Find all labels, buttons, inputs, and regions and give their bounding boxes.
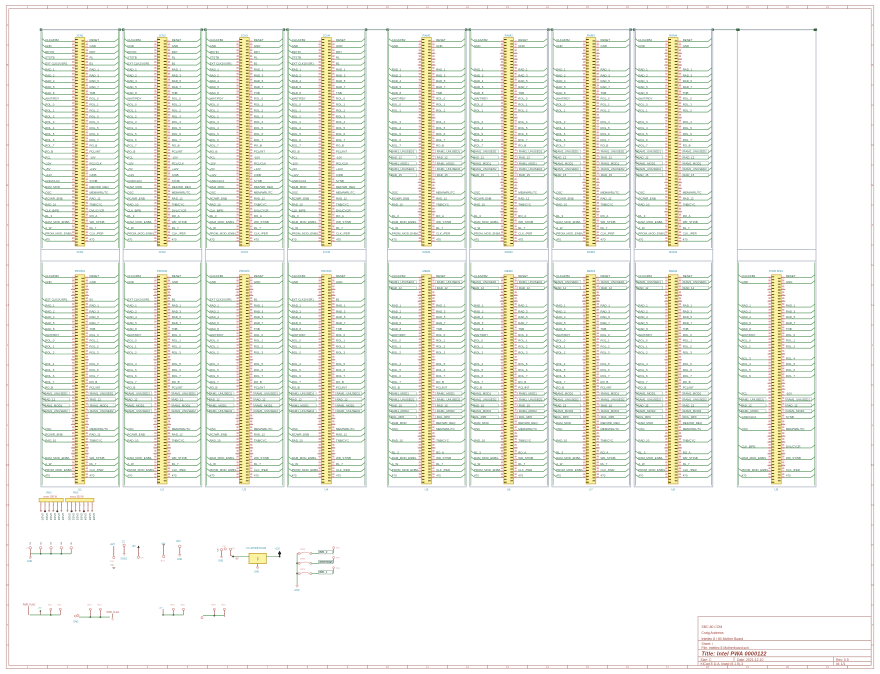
svg-text:R12: R12	[58, 605, 63, 607]
svg-text:GND0: GND0	[41, 513, 45, 521]
svg-text:G: G	[6, 263, 8, 267]
svg-text:GND3: GND3	[53, 513, 57, 521]
svg-text:JCN2: JCN2	[158, 250, 166, 254]
svg-text:Id: 1/1: Id: 1/1	[836, 662, 846, 666]
svg-text:PWR_FLAG: PWR_FLAG	[23, 604, 36, 607]
svg-text:S5: S5	[71, 541, 73, 544]
svg-text:GND2: GND2	[121, 559, 128, 561]
svg-text:JCN1: JCN1	[76, 33, 84, 37]
svg-text:JCN4: JCN4	[323, 33, 331, 37]
svg-text:JCN1: JCN1	[76, 250, 84, 254]
svg-text:R21: R21	[222, 605, 227, 607]
svg-text:INTR/TRAP: INTR/TRAP	[319, 561, 332, 564]
svg-text:JCN4: JCN4	[323, 250, 331, 254]
svg-text:RAM2: RAM2	[505, 250, 513, 254]
svg-text:U5: U5	[425, 488, 429, 492]
svg-text:GND: GND	[254, 572, 259, 574]
svg-text:C2: C2	[122, 541, 126, 543]
svg-text:RAM2: RAM2	[505, 33, 513, 37]
svg-text:U6: U6	[507, 488, 511, 492]
svg-text:S2: S2	[40, 541, 42, 544]
svg-text:C10: C10	[110, 561, 115, 563]
svg-text:PWR MSU: PWR MSU	[769, 269, 783, 273]
svg-text:T: T	[7, 623, 9, 627]
svg-text:-5V: -5V	[235, 559, 239, 561]
svg-text:TP1: TP1	[336, 548, 341, 550]
svg-text:R: R	[7, 583, 9, 587]
svg-text:P: P	[7, 543, 9, 547]
svg-text:JP85: JP85	[300, 559, 306, 561]
svg-text:R14: R14	[98, 605, 103, 607]
svg-text:GND0: GND0	[67, 513, 71, 521]
svg-text:H: H	[7, 303, 9, 307]
svg-text:File: Intellec 8 Motherboard.s: File: Intellec 8 Motherboard.sch	[702, 646, 749, 650]
svg-text:PWR_FLAG: PWR_FLAG	[107, 611, 120, 614]
svg-text:D1: D1	[232, 548, 236, 550]
svg-text:R20: R20	[181, 605, 186, 607]
svg-text:GND2: GND2	[49, 513, 53, 521]
svg-text:PROM4: PROM4	[321, 269, 332, 273]
svg-text:R13: R13	[88, 605, 93, 607]
svg-text:INTL_2: INTL_2	[319, 551, 328, 554]
svg-text:M: M	[871, 463, 873, 467]
svg-text:RAM4: RAM4	[669, 33, 677, 37]
svg-text:RN1: RN1	[46, 491, 52, 495]
svg-text:PROM1: PROM1	[75, 269, 86, 273]
svg-text:Title: Intel PWA 0000122: Title: Intel PWA 0000122	[702, 652, 767, 658]
svg-text:H: H	[872, 303, 874, 307]
svg-text:R19: R19	[212, 605, 217, 607]
svg-text:RAM1: RAM1	[422, 33, 430, 37]
svg-text:R11: R11	[48, 605, 53, 607]
svg-text:S3: S3	[51, 541, 53, 544]
svg-text:R: R	[872, 583, 874, 587]
svg-text:GND: GND	[27, 561, 32, 563]
svg-text:U1: U1	[78, 488, 82, 492]
svg-text:K: K	[872, 383, 874, 387]
svg-text:GND4: GND4	[84, 513, 88, 521]
svg-text:RAM1: RAM1	[422, 250, 430, 254]
svg-text:R16: R16	[177, 541, 182, 543]
svg-text:+5V: +5V	[159, 607, 163, 609]
svg-text:INTL_1: INTL_1	[319, 571, 328, 574]
svg-text:xxxxx 330 W: xxxxx 330 W	[70, 495, 84, 498]
svg-text:U7: U7	[589, 488, 593, 492]
svg-text:F: F	[872, 223, 874, 227]
svg-text:+12V: +12V	[275, 549, 281, 551]
svg-text:U3: U3	[242, 488, 246, 492]
svg-text:JP83: JP83	[300, 569, 306, 571]
svg-text:GND: GND	[73, 622, 78, 624]
svg-text:C8: C8	[217, 548, 219, 552]
svg-text:+12V: +12V	[110, 544, 116, 546]
svg-text:JCN3: JCN3	[241, 250, 249, 254]
svg-text:SBC-80.COM: SBC-80.COM	[702, 625, 723, 629]
svg-text:GND6: GND6	[92, 513, 96, 521]
svg-text:GND: GND	[177, 559, 182, 561]
svg-text:JCN2: JCN2	[158, 33, 166, 37]
svg-text:C: C	[872, 103, 874, 107]
svg-text:PROM2: PROM2	[157, 269, 168, 273]
svg-text:B: B	[7, 63, 9, 67]
svg-text:P: P	[872, 543, 874, 547]
svg-text:M: M	[6, 463, 8, 467]
svg-text:RAM4: RAM4	[669, 250, 677, 254]
svg-text:C4_: C4_	[111, 565, 116, 567]
svg-text:K: K	[7, 383, 9, 387]
svg-text:C6: C6	[141, 558, 145, 560]
svg-text:E: E	[7, 183, 9, 187]
svg-text:A: A	[7, 23, 9, 27]
svg-text:JP84: JP84	[300, 549, 306, 551]
svg-text:L: L	[872, 423, 874, 427]
svg-text:B: B	[872, 63, 874, 67]
svg-text:MEM2: MEM2	[505, 269, 514, 273]
svg-text:U1 LM7905/TO220: U1 LM7905/TO220	[246, 547, 267, 550]
svg-text:RAM3: RAM3	[587, 250, 595, 254]
svg-text:GND: GND	[294, 590, 299, 592]
svg-text:S1: S1	[30, 541, 32, 544]
svg-text:N: N	[7, 503, 9, 507]
svg-text:L: L	[7, 423, 9, 427]
svg-text:RAM3: RAM3	[587, 33, 595, 37]
svg-text:GND5: GND5	[61, 513, 65, 521]
svg-text:C: C	[7, 103, 9, 107]
svg-text:Intellec 8 / 80 Mother Board: Intellec 8 / 80 Mother Board	[702, 637, 744, 641]
svg-text:Craig Andrews: Craig Andrews	[702, 631, 724, 635]
svg-text:MEM1: MEM1	[422, 269, 431, 273]
svg-text:S4: S4	[61, 541, 63, 544]
svg-text:VO: VO	[258, 557, 260, 560]
svg-text:U2: U2	[160, 488, 164, 492]
svg-text:MEM3: MEM3	[587, 269, 596, 273]
svg-text:GND3: GND3	[80, 513, 84, 521]
svg-text:GND: GND	[218, 561, 223, 563]
svg-text:T: T	[872, 623, 874, 627]
svg-text:JCN3: JCN3	[241, 33, 249, 37]
svg-text:RN2: RN2	[73, 491, 79, 495]
svg-text:TP2: TP2	[336, 558, 341, 560]
svg-text:KiCad E.D.A. kicad (5.1.5)-3: KiCad E.D.A. kicad (5.1.5)-3	[701, 662, 744, 666]
svg-text:U8: U8	[671, 488, 675, 492]
svg-text:TP3: TP3	[336, 568, 341, 570]
svg-text:GND1: GND1	[71, 513, 75, 521]
svg-text:U9: U9	[774, 488, 778, 492]
svg-text:D: D	[872, 143, 874, 147]
svg-text:R18: R18	[171, 605, 176, 607]
svg-text:R17: R17	[161, 560, 166, 562]
svg-text:U4: U4	[325, 488, 329, 492]
svg-text:MEM4: MEM4	[669, 269, 678, 273]
svg-text:F: F	[7, 223, 9, 227]
svg-text:TP: TP	[26, 548, 29, 550]
svg-text:GND1: GND1	[45, 513, 49, 521]
svg-text:A: A	[872, 23, 874, 27]
svg-text:+5V: +5V	[38, 607, 42, 609]
svg-text:xxxxx 330 W: xxxxx 330 W	[43, 495, 57, 498]
svg-text:G: G	[871, 263, 873, 267]
svg-text:GND5: GND5	[88, 513, 92, 521]
svg-text:D: D	[7, 143, 9, 147]
svg-text:E: E	[872, 183, 874, 187]
svg-text:PROM3: PROM3	[239, 269, 250, 273]
svg-text:GND2: GND2	[76, 513, 80, 521]
svg-text:+5V: +5V	[132, 546, 137, 548]
svg-text:N: N	[872, 503, 874, 507]
